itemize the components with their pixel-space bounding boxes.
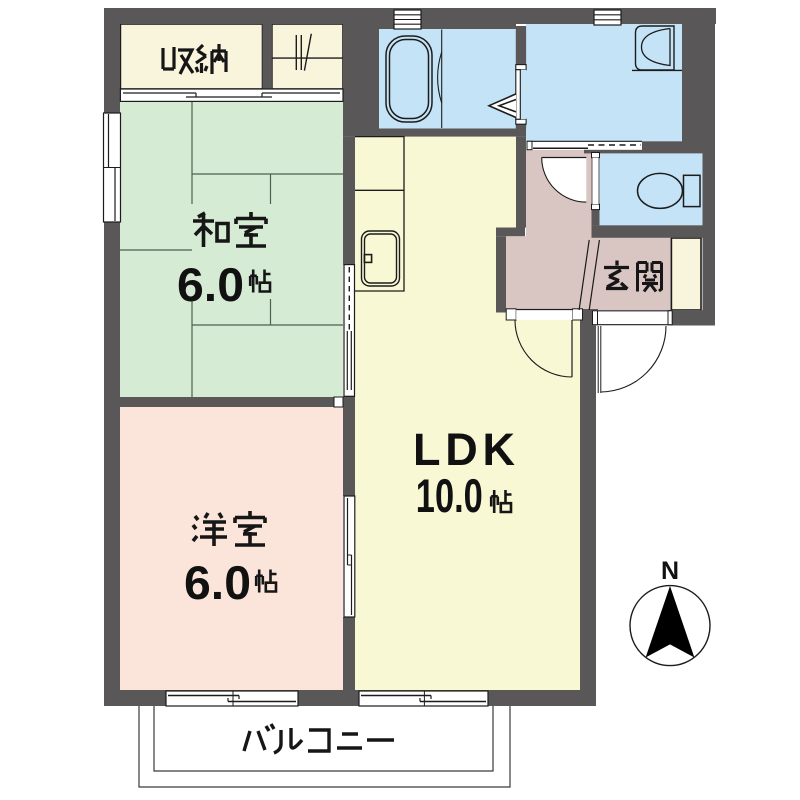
svg-text:6.0: 6.0 [177, 258, 244, 311]
svg-text:6.0: 6.0 [184, 556, 251, 609]
svg-text:LDK: LDK [413, 424, 516, 475]
svg-text:10.0: 10.0 [416, 469, 483, 522]
svg-text:N: N [661, 557, 679, 585]
